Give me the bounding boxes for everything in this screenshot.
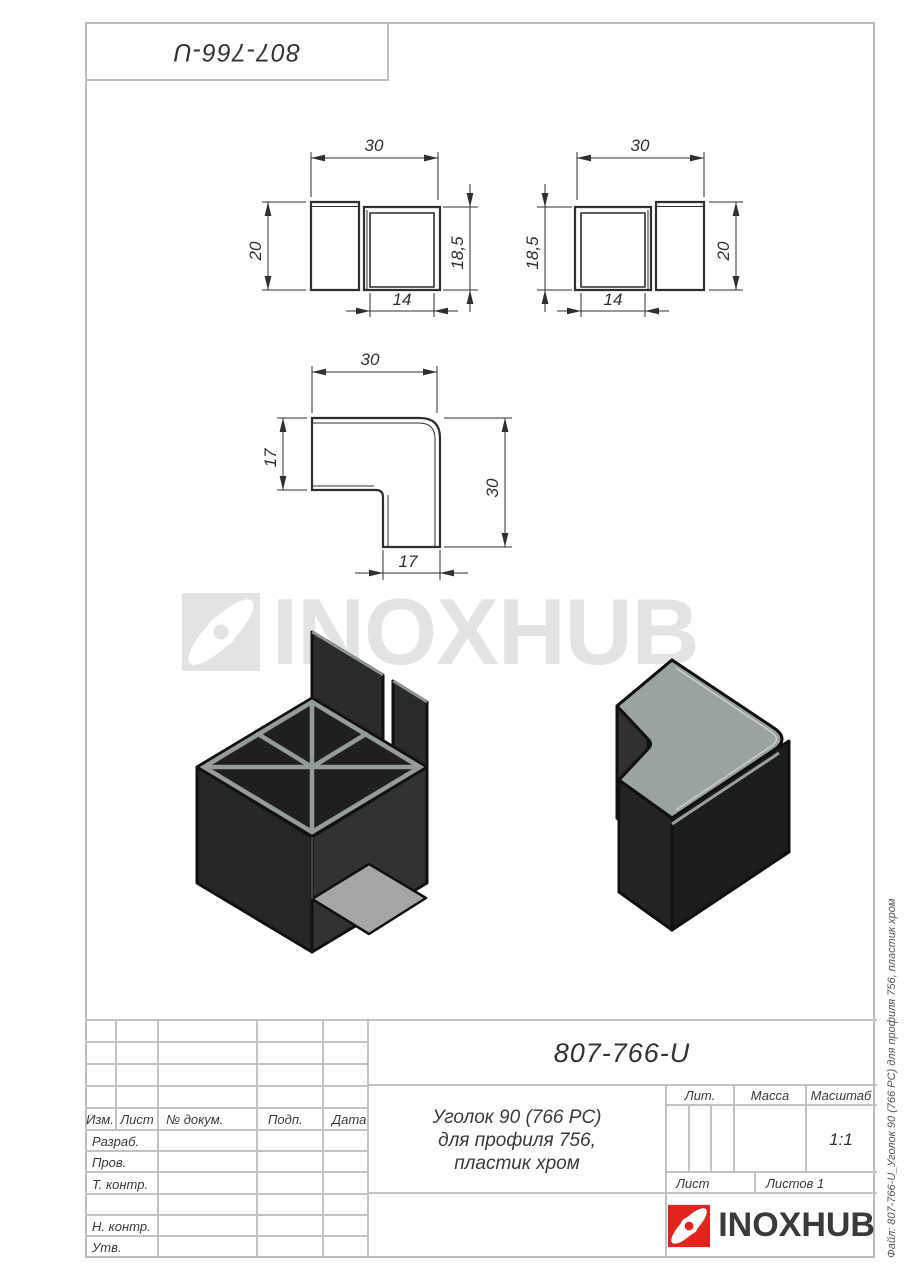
inoxhub-logo: INOXHUB [668, 1195, 875, 1256]
file-label: Файл: 807-766-U_Уголок 90 (766 РС) для п… [886, 899, 898, 1258]
dim-text: 18,5 [448, 236, 467, 270]
dim-text: 30 [361, 350, 380, 369]
dim-text: 20 [714, 241, 733, 261]
col-podp: Подп. [268, 1112, 303, 1127]
listov-label: Листов 1 [765, 1176, 824, 1191]
row-razrab: Разраб. [92, 1134, 139, 1149]
doc-number: 807-766-U [554, 1038, 691, 1068]
dim-text: 18,5 [523, 236, 542, 270]
description-line-2: для профиля 756, [438, 1130, 596, 1151]
view-front-right: 30 18,5 20 14 [523, 136, 743, 317]
col-izm: Изм. [86, 1112, 114, 1127]
view-plan: 30 17 30 17 [261, 350, 512, 580]
part-number-box: 807-766-U [85, 22, 389, 81]
inoxhub-logo-text: INOXHUB [718, 1206, 875, 1245]
iso-view-outside [555, 645, 805, 945]
dim-text: 30 [631, 136, 650, 155]
dim-text: 30 [365, 136, 384, 155]
scale-value: 1:1 [829, 1130, 853, 1149]
inoxhub-logo-icon [668, 1203, 710, 1249]
dim-text: 14 [393, 290, 412, 309]
dim-text: 20 [246, 241, 265, 261]
dim-text: 14 [604, 290, 623, 309]
lit-label: Лит. [684, 1088, 715, 1103]
dim-text: 17 [261, 448, 280, 467]
drawing-sheet: INOXHUB 807-766-U [0, 0, 905, 1280]
view-front-left: 30 20 18,5 14 [246, 136, 478, 317]
iso-view-inside [180, 620, 440, 965]
description-line-1: Уголок 90 (766 РС) [431, 1107, 601, 1128]
row-utv: Утв. [91, 1240, 122, 1255]
masshtab-label: Масштаб [811, 1088, 872, 1103]
row-prov: Пров. [92, 1155, 126, 1170]
massa-label: Масса [751, 1088, 789, 1103]
dim-text: 17 [399, 552, 418, 571]
col-doc: № докум. [166, 1112, 223, 1127]
list-label: Лист [675, 1176, 710, 1191]
dim-text: 30 [483, 478, 502, 497]
col-data: Дата [330, 1112, 366, 1127]
row-nkontr: Н. контр. [92, 1219, 151, 1234]
orthographic-views: 30 20 18,5 14 [85, 130, 877, 600]
col-list: Лист [119, 1112, 154, 1127]
row-tkontr: Т. контр. [92, 1177, 148, 1192]
part-number-rotated: 807-766-U [173, 37, 300, 66]
description-line-3: пластик хром [454, 1153, 580, 1174]
